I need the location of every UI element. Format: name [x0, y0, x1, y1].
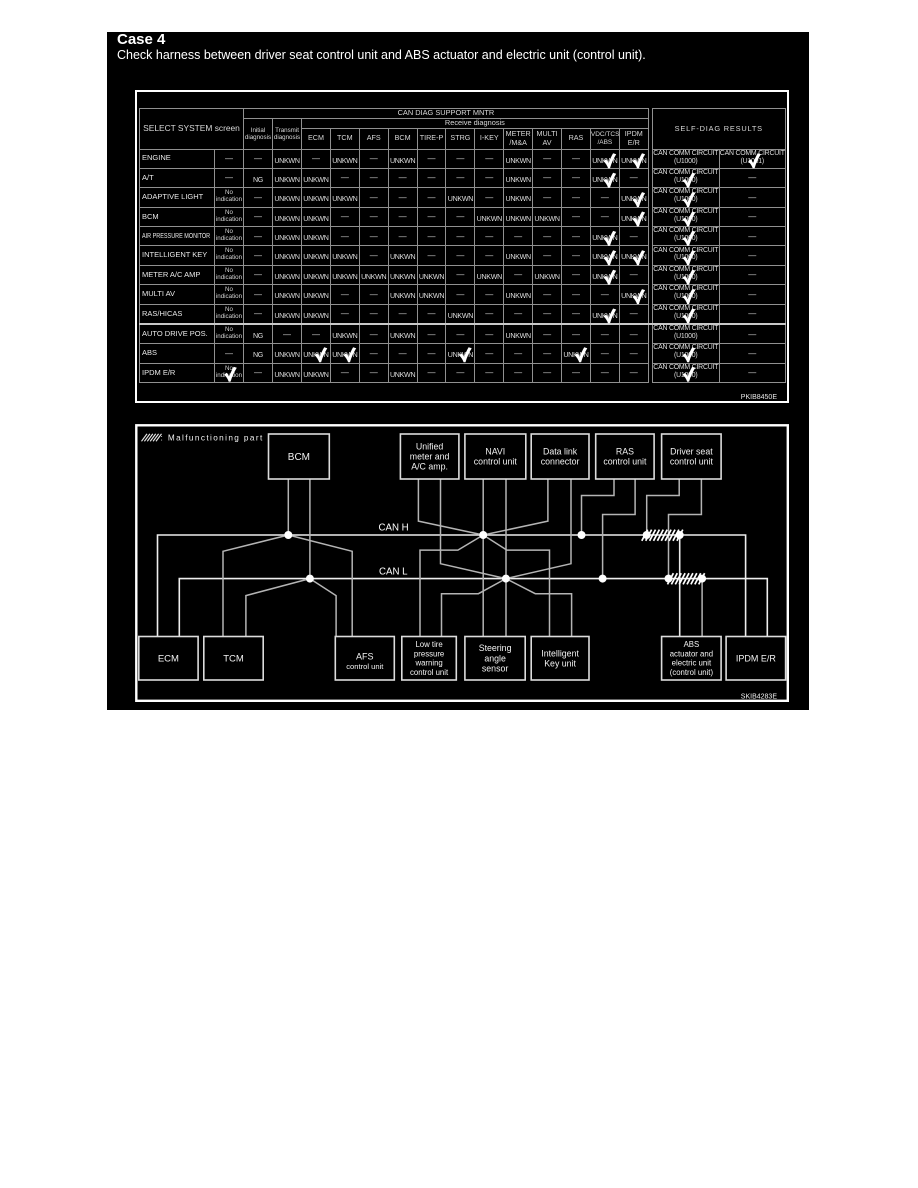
svg-text:TCM: TCM: [223, 654, 244, 665]
svg-text:RAS: RAS: [616, 447, 634, 457]
svg-text:Data link: Data link: [543, 447, 578, 457]
svg-text:Key unit: Key unit: [544, 658, 576, 668]
svg-text:ABS: ABS: [684, 640, 700, 649]
svg-text:Driver seat: Driver seat: [670, 447, 713, 457]
svg-text:SKIB4283E: SKIB4283E: [741, 694, 778, 701]
svg-text:BCM: BCM: [288, 452, 310, 463]
svg-text:ECM: ECM: [158, 654, 179, 665]
svg-text:AFS: AFS: [356, 652, 374, 662]
svg-text:electric unit: electric unit: [672, 659, 712, 668]
svg-text:CAN H: CAN H: [379, 523, 409, 534]
svg-text:angle: angle: [484, 653, 506, 663]
svg-text:control unit: control unit: [670, 457, 714, 467]
svg-text:: Malfunctioning part: : Malfunctioning part: [161, 434, 264, 443]
svg-text:Unified: Unified: [416, 442, 443, 452]
svg-text:sensor: sensor: [482, 664, 508, 674]
svg-text:pressure: pressure: [414, 649, 444, 658]
svg-text:control unit: control unit: [474, 457, 518, 467]
svg-text:control unit: control unit: [346, 662, 384, 671]
svg-text:connector: connector: [541, 457, 580, 467]
svg-text:A/C amp.: A/C amp.: [411, 462, 448, 472]
svg-text:(control unit): (control unit): [670, 668, 714, 677]
svg-text:control unit: control unit: [603, 457, 647, 467]
svg-text:IPDM E/R: IPDM E/R: [736, 653, 777, 663]
svg-text:Low tire: Low tire: [415, 640, 442, 649]
svg-text:Intelligent: Intelligent: [541, 648, 579, 658]
svg-text:control unit: control unit: [410, 668, 449, 677]
svg-text:meter and: meter and: [410, 452, 450, 462]
svg-text:NAVI: NAVI: [485, 447, 505, 457]
svg-text:CAN L: CAN L: [379, 567, 408, 578]
svg-text:actuator and: actuator and: [670, 649, 713, 658]
svg-text:Steering: Steering: [479, 643, 512, 653]
svg-text:warning: warning: [414, 659, 442, 668]
